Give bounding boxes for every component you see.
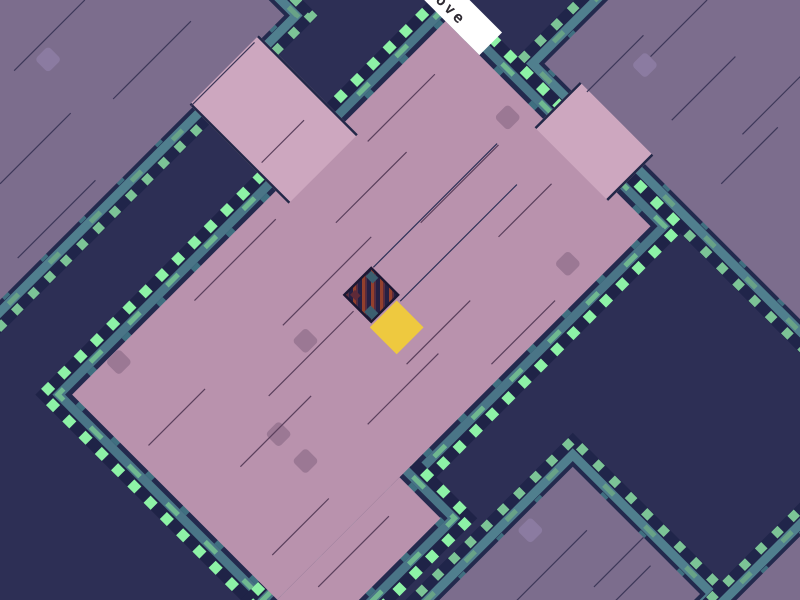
game-scene: Move <box>0 0 800 600</box>
game-viewport: Move <box>0 0 800 600</box>
